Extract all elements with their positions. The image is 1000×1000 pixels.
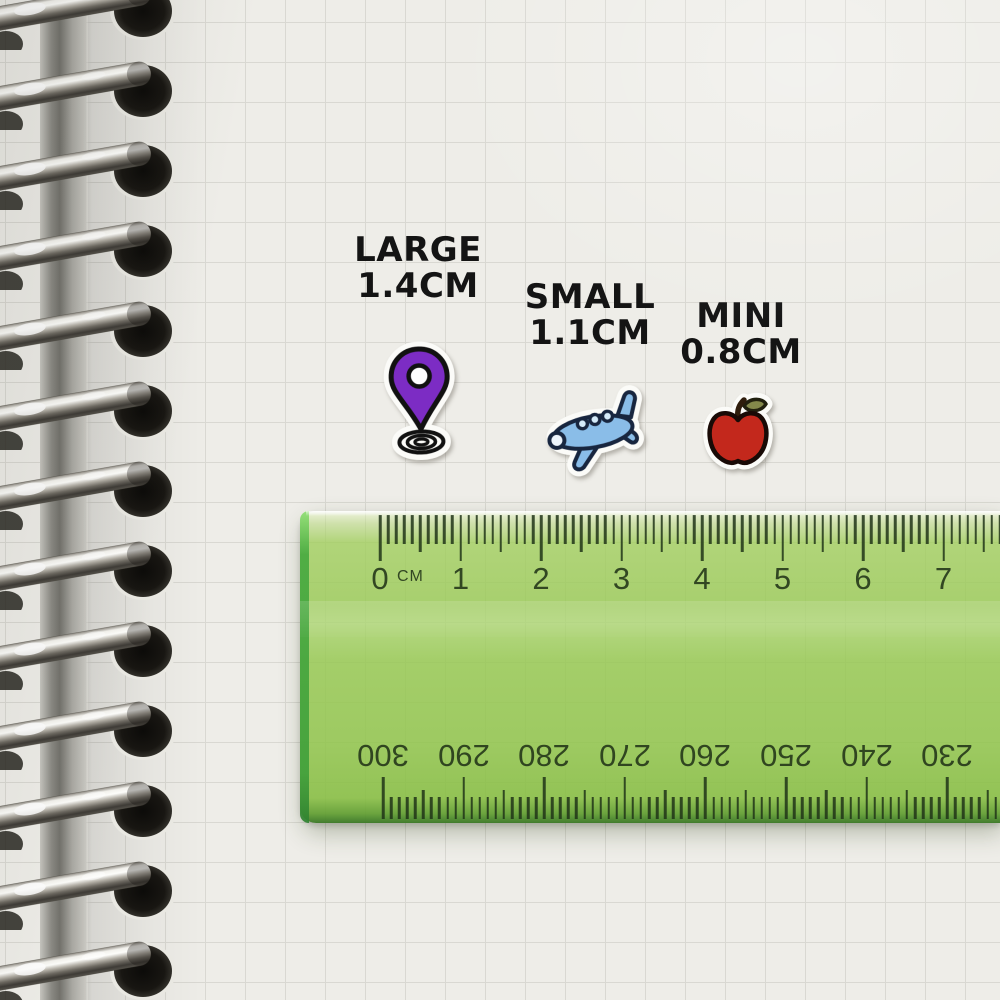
ruler-tick [656,797,659,819]
ruler: 01234567 CM 300290280270260250240230 [300,511,1000,823]
size-value: 0.8CM [631,334,851,370]
ruler-tick [789,515,792,544]
ruler-tick [438,797,441,819]
ruler-tick [741,515,744,552]
ruler-number: 6 [854,561,871,597]
ruler-tick [508,515,511,544]
ruler-tick [801,797,804,819]
ruler-tick [575,797,578,819]
ruler-tick [387,515,390,544]
ruler-tick [769,797,772,819]
binder-ring [0,206,185,290]
ruler-tick [548,515,551,544]
binder-ring [0,606,185,690]
size-name: LARGE [308,232,528,268]
ruler-tick [881,797,884,819]
size-name: MINI [631,298,851,334]
ruler-number: 3 [613,561,630,597]
ruler-tick [991,515,994,544]
size-label-mini: MINI 0.8CM [631,298,851,370]
ruler-tick [519,797,522,819]
ruler-tick [833,797,836,819]
ruler-number: 290 [438,737,490,773]
ruler-tick [382,777,385,819]
ruler-sheen [300,601,1000,637]
ruler-tick [612,515,615,544]
ruler-tick [704,777,707,819]
ruler-tick [540,515,543,561]
binder-ring [0,46,185,130]
ruler-tick [475,515,478,544]
ruler-tick [532,515,535,544]
ruler-number: 250 [760,737,812,773]
binder-ring [0,446,185,530]
ruler-tick [797,515,800,544]
ruler-tick [588,515,591,544]
ruler-number: 0 [371,561,388,597]
ruler-tick [685,515,688,544]
ruler-number: 5 [774,561,791,597]
ruler-tick [607,797,610,819]
ruler-number: 1 [452,561,469,597]
ruler-tick [628,515,631,544]
ruler-tick [793,797,796,819]
ruler-tick [974,515,977,544]
binder-ring [0,286,185,370]
ruler-tick [390,797,393,819]
ruler-tick [717,515,720,544]
ruler-tick [435,515,438,544]
ruler-tick [809,797,812,819]
ruler-tick [870,515,873,544]
ruler-tick [978,797,981,819]
ruler-tick [946,777,949,819]
ruler-tick [661,515,664,552]
ruler-tick [986,790,989,819]
ruler-tick [930,797,933,819]
binder-ring [0,766,185,850]
ruler-tick [551,797,554,819]
ruler-tick [825,790,828,819]
ruler-tick [615,797,618,819]
location-pin-icon [379,338,461,465]
ruler-tick [443,515,446,544]
ruler-tick [620,515,623,561]
ruler-tick [652,515,655,544]
ruler-tick [938,797,941,819]
ruler-tick [709,515,712,544]
ruler-tick [785,777,788,819]
notebook-scene: LARGE 1.4CM SMALL 1.1CM MINI 0.8CM [0,0,1000,1000]
location-pin-sticker [379,338,461,465]
ruler-tick [640,797,643,819]
ruler-number: 270 [599,737,651,773]
ruler-tick [994,797,997,819]
ruler-tick [725,515,728,544]
ruler-number: 260 [680,737,732,773]
ruler-tick [728,797,731,819]
ruler-tick [817,797,820,819]
ruler-tick [564,515,567,544]
ruler-tick [511,797,514,819]
ruler-tick [720,797,723,819]
ruler-tick [491,515,494,544]
ruler-tick [406,797,409,819]
apple-sticker [703,394,773,470]
ruler-tick [761,797,764,819]
ruler-tick [805,515,808,544]
ruler-tick [736,797,739,819]
ruler-tick [934,515,937,544]
ruler-tick [414,797,417,819]
ruler-tick [849,797,852,819]
ruler-tick [430,797,433,819]
ruler-tick [822,515,825,552]
ruler-tick [983,515,986,552]
ruler-tick [712,797,715,819]
ruler-number: 280 [518,737,570,773]
ruler-tick [543,777,546,819]
ruler-tick [830,515,833,544]
ruler-tick [483,515,486,544]
ruler-tick [914,797,917,819]
binder-ring [0,526,185,610]
ruler-tick [693,515,696,544]
binder-ring [0,366,185,450]
ruler-tick [862,515,865,561]
ruler-tick [580,515,583,552]
ruler-number: 2 [532,561,549,597]
ruler-tick [894,515,897,544]
ruler-tick [599,797,602,819]
ruler-tick [918,515,921,544]
ruler-tick [454,797,457,819]
ruler-tick [632,797,635,819]
ruler-tick [427,515,430,544]
ruler-tick [495,797,498,819]
ruler-tick [954,797,957,819]
ruler-tick [841,797,844,819]
ruler-tick [524,515,527,544]
ruler-tick [624,777,627,819]
ruler-tick [672,797,675,819]
ruler-tick [950,515,953,544]
binder-ring [0,926,185,1000]
ruler-tick [572,515,575,544]
ruler-tick [503,790,506,819]
ruler-tick [886,515,889,544]
ruler-tick [470,797,473,819]
ruler-tick [644,515,647,544]
ruler-tick [591,797,594,819]
apple-icon [703,394,773,470]
ruler-tick [744,790,747,819]
ruler-tick [677,515,680,544]
ruler-unit-label: CM [397,568,424,586]
ruler-tick [535,797,538,819]
ruler-tick [636,515,639,544]
ruler-tick [583,790,586,819]
ruler-number: 7 [935,561,952,597]
ruler-tick [906,790,909,819]
ruler-tick [567,797,570,819]
ruler-tick [451,515,454,544]
ruler-tick [902,515,905,552]
ruler-tick [462,777,465,819]
ruler-tick [604,515,607,544]
binder-ring [0,686,185,770]
ruler-tick [680,797,683,819]
ruler-tick [487,797,490,819]
ruler-tick [865,777,868,819]
ruler-tick [664,790,667,819]
ruler-tick [773,515,776,544]
ruler-tick [446,797,449,819]
ruler-tick [459,515,462,561]
ruler-tick [559,797,562,819]
ruler-tick [701,515,704,561]
ruler-tick [857,797,860,819]
ruler-tick [942,515,945,561]
ruler-number: 240 [841,737,893,773]
ruler-tick [753,797,756,819]
ruler-tick [765,515,768,544]
ruler-number: 300 [357,737,409,773]
ruler-tick [403,515,406,544]
ruler-tick [379,515,382,561]
binder-ring [0,846,185,930]
ruler-tick [962,797,965,819]
ruler-tick [395,515,398,544]
ruler-tick [777,797,780,819]
ruler-tick [873,797,876,819]
ruler-tick [890,797,893,819]
ruler-tick [854,515,857,544]
ruler-tick [926,515,929,544]
airplane-sticker [538,393,648,470]
binder-ring [0,0,185,50]
binder-ring [0,126,185,210]
ruler-tick [749,515,752,544]
ruler-tick [398,797,401,819]
ruler-tick [757,515,760,544]
ruler-tick [478,797,481,819]
ruler-tick [958,515,961,544]
ruler-tick [813,515,816,544]
ruler-number: 230 [921,737,973,773]
ruler-tick [966,515,969,544]
ruler-tick [527,797,530,819]
ruler-tick [781,515,784,561]
ruler-tick [970,797,973,819]
ruler-tick [422,790,425,819]
ruler-number: 4 [693,561,710,597]
airplane-icon [538,393,648,470]
ruler-tick [648,797,651,819]
ruler-tick [500,515,503,552]
ruler-tick [898,797,901,819]
ruler-tick [419,515,422,552]
ruler-tick [411,515,414,544]
ruler-tick [878,515,881,544]
ruler-tick [467,515,470,544]
ruler-tick [696,797,699,819]
ruler-tick [733,515,736,544]
ruler-tick [596,515,599,544]
ruler-tick [516,515,519,544]
spiral-binding [0,0,190,1000]
ruler-tick [922,797,925,819]
ruler-tick [838,515,841,544]
ruler-tick [688,797,691,819]
ruler-tick [669,515,672,544]
ruler-tick [556,515,559,544]
ruler-tick [910,515,913,544]
ruler-tick [846,515,849,544]
